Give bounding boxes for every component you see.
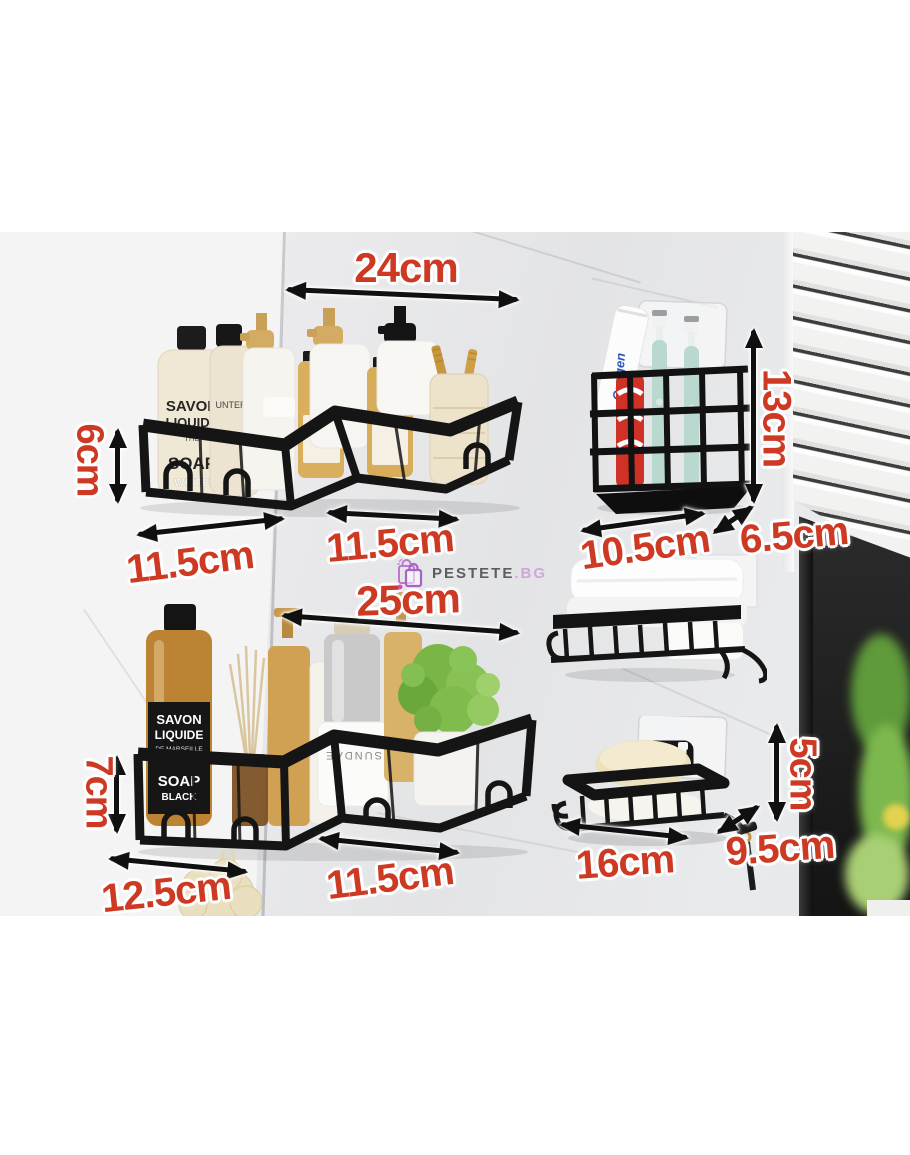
bottle-label-line: BLACK [162, 792, 198, 803]
window-sill [867, 900, 910, 916]
watermark-text: PESTETE.BG [432, 565, 547, 582]
dim-label-soap-dish-depth: 9.5cm [724, 823, 835, 875]
dim-label-soap-dish-width: 16cm [574, 837, 675, 889]
bottle-label-line: LIQUIDE [155, 728, 204, 742]
dim-arrow-soap-dish-height [774, 725, 779, 820]
shelf-hook [741, 649, 766, 681]
dim-label-toothbrush-holder-depth: 6.5cm [738, 509, 850, 563]
adhesive-pad [637, 300, 727, 369]
towel-shelf [545, 553, 767, 688]
watermark-brand: PESTETE [432, 565, 514, 582]
marble-vein [459, 232, 641, 284]
yellow-flower [883, 804, 909, 830]
watermark-suffix: .BG [514, 565, 547, 582]
savon-bottle-amber: SAVON LIQUIDE DE MARSEILLE SOAP BLACK [146, 604, 212, 826]
dim-arrow-upper-shelf-height [115, 430, 120, 502]
dim-label-soap-dish-height: 5cm [781, 737, 824, 810]
dim-label-lower-shelf-height: 7cm [77, 755, 120, 828]
reed-diffuser [230, 646, 268, 826]
bathroom-scene: SAVON LIQUIDE THE SOAP WHITE UNTER ⊕ [0, 232, 910, 916]
dim-label-upper-shelf-height: 6cm [68, 423, 111, 496]
bottle-label-line: SAVON [156, 712, 201, 727]
upper-corner-shelf: SAVON LIQUIDE THE SOAP WHITE UNTER ⊕ [110, 303, 546, 519]
watermark: PESTETE.BG [396, 556, 547, 590]
dim-label-upper-shelf-width: 24cm [354, 244, 457, 292]
shelf-shadow [565, 668, 735, 682]
product-photo: SAVON LIQUIDE THE SOAP WHITE UNTER ⊕ [0, 0, 910, 1155]
gray-dispenser [324, 620, 380, 728]
small-white-jar [263, 397, 295, 417]
amber-pump-bottle [268, 608, 310, 826]
dim-label-toothbrush-holder-height: 13cm [754, 369, 799, 467]
toothbrush-holder: Oxygen [582, 296, 762, 518]
shopping-bag-icon [396, 556, 426, 590]
